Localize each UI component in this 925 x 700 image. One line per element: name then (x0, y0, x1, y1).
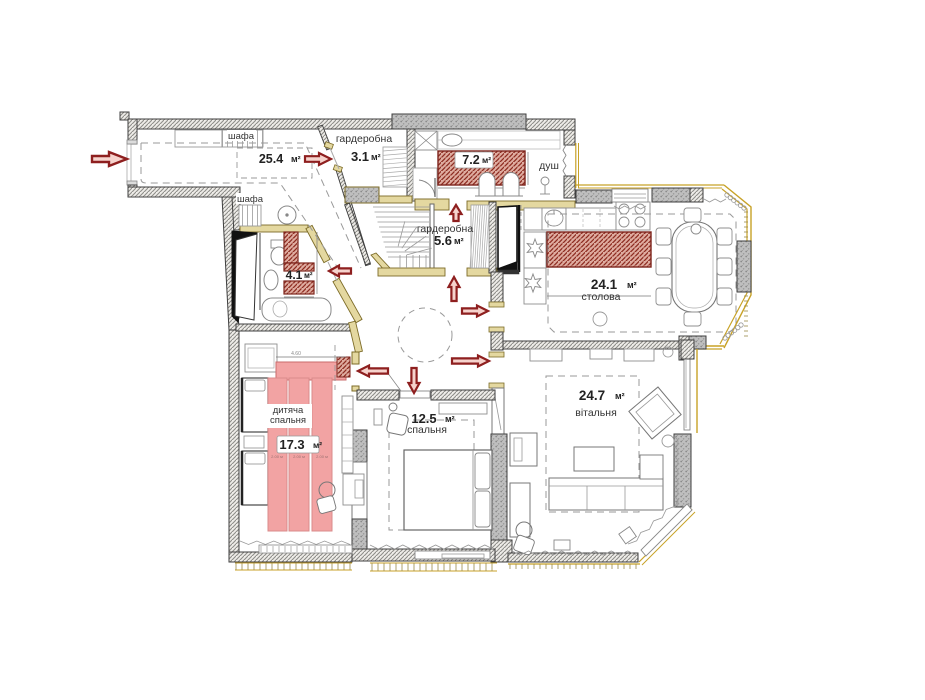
svg-text:24.7: 24.7 (579, 388, 605, 403)
svg-text:25.4: 25.4 (259, 152, 283, 166)
svg-text:гардеробна: гардеробна (336, 133, 392, 145)
svg-text:столова: столова (582, 291, 621, 303)
svg-text:17.3: 17.3 (279, 437, 304, 452)
svg-text:м²: м² (454, 236, 464, 246)
svg-text:2.00 м: 2.00 м (293, 454, 305, 459)
svg-text:душ: душ (539, 160, 559, 172)
svg-text:м²: м² (615, 391, 625, 401)
svg-text:7.2: 7.2 (462, 153, 479, 167)
svg-text:2.00 м: 2.00 м (271, 454, 283, 459)
svg-text:м²: м² (313, 440, 322, 450)
svg-text:м²: м² (304, 271, 313, 280)
svg-text:м²: м² (371, 152, 381, 162)
svg-text:3.1: 3.1 (351, 149, 369, 164)
svg-text:спальня: спальня (407, 424, 447, 436)
svg-text:4.1: 4.1 (286, 268, 303, 282)
svg-text:24.1: 24.1 (591, 277, 618, 292)
svg-text:м²: м² (627, 280, 637, 290)
svg-text:шафа: шафа (228, 131, 255, 142)
svg-text:м²: м² (482, 155, 491, 165)
svg-text:5.6: 5.6 (434, 233, 452, 248)
svg-text:м²: м² (445, 414, 455, 424)
svg-text:вітальня: вітальня (575, 407, 617, 419)
svg-text:4.60: 4.60 (291, 351, 301, 357)
svg-text:2.00 м: 2.00 м (316, 454, 328, 459)
svg-text:спальня: спальня (270, 415, 306, 426)
svg-text:шафа: шафа (237, 194, 264, 205)
svg-text:м²: м² (291, 154, 301, 164)
